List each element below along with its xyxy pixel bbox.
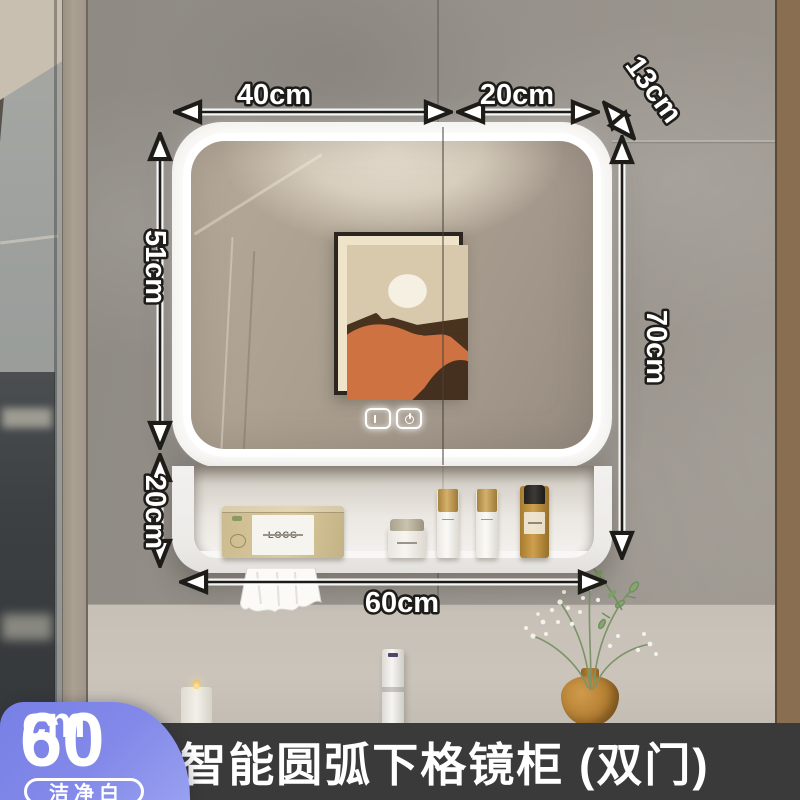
tissue-box: ĿOCG — [222, 506, 344, 558]
cream-jar — [388, 527, 426, 558]
product-image: ĿOCG — [0, 0, 800, 800]
spray-bottle — [476, 489, 498, 558]
soap-dispenser — [382, 649, 404, 726]
desert-art — [347, 245, 468, 400]
hanging-tissue — [233, 568, 329, 618]
defog-touch-icon — [365, 408, 391, 429]
perfume-bottle — [520, 486, 549, 558]
dispenser-sensor — [388, 653, 398, 657]
wall-tile-seam-horizontal — [612, 140, 775, 142]
candle-flame — [193, 679, 200, 689]
badge-size-unit: cm — [22, 698, 86, 748]
power-touch-icon — [396, 408, 422, 429]
badge-size: 60 cm — [20, 698, 190, 768]
wood-trim — [775, 0, 800, 723]
cabinet-door-seam — [442, 127, 444, 465]
product-title: 智能圆弧下格镜柜 (双门) — [95, 723, 795, 800]
door-frame-column — [62, 0, 88, 723]
spray-bottle — [437, 489, 459, 558]
glass-edge — [54, 0, 57, 723]
size-badge: 60 cm 洁净白 — [0, 702, 190, 800]
badge-finish-pill: 洁净白 — [24, 778, 144, 800]
cabinet-shelf-light — [2, 408, 52, 428]
cabinet-shelf-light — [2, 614, 52, 640]
